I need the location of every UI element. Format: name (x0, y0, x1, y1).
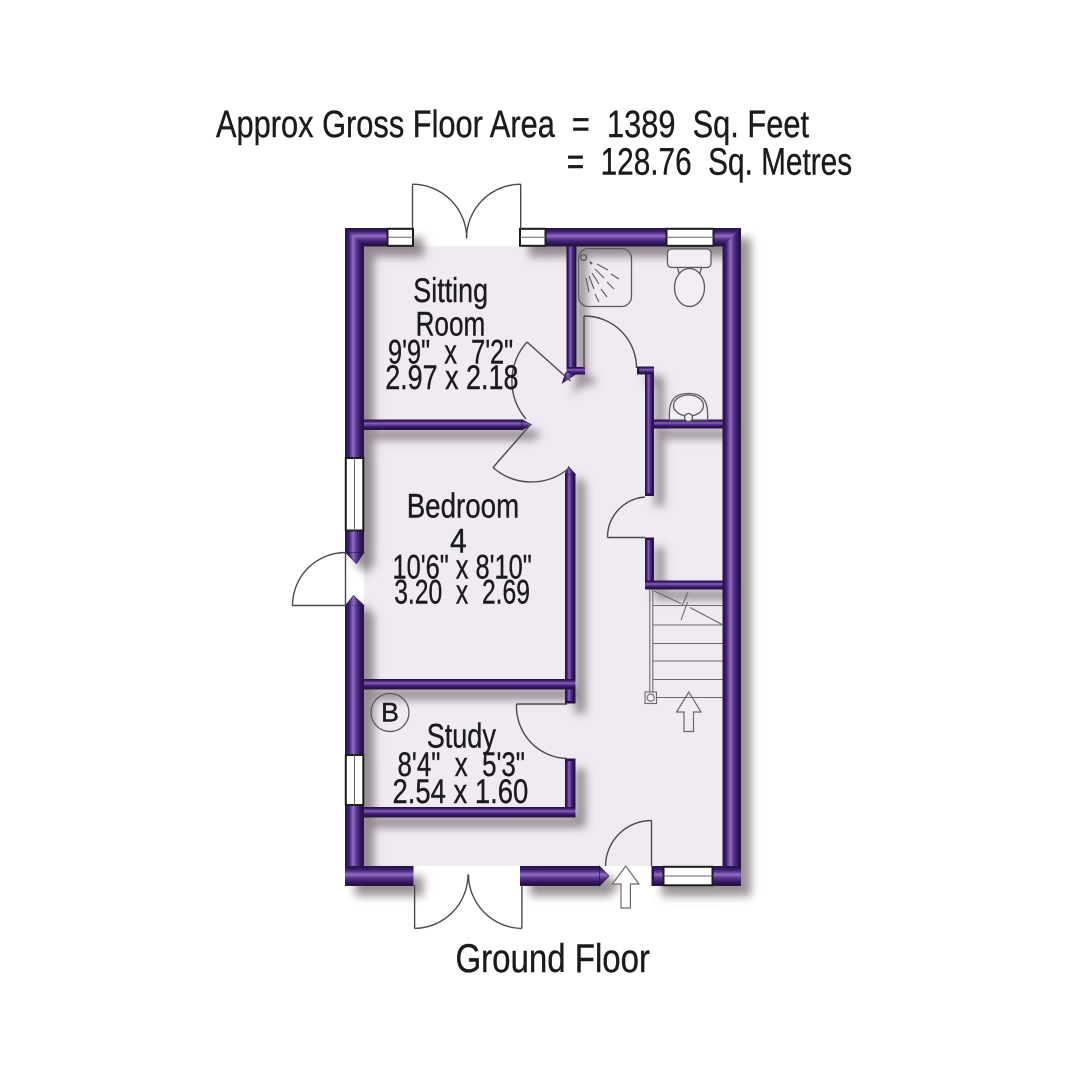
svg-text:B: B (381, 698, 399, 728)
svg-text:Sitting: Sitting (413, 272, 488, 310)
svg-text:= 128.76 Sq. Metres: = 128.76 Sq. Metres (567, 141, 852, 183)
svg-text:Ground Floor: Ground Floor (456, 937, 651, 981)
svg-text:Bedroom: Bedroom (407, 488, 520, 526)
svg-text:2.97 x 2.18: 2.97 x 2.18 (385, 359, 518, 397)
svg-text:Approx Gross Floor Area = 13: Approx Gross Floor Area = 1389 Sq. Feet (216, 104, 809, 146)
svg-text:3.20 x 2.69: 3.20 x 2.69 (394, 574, 530, 612)
svg-text:2.54 x 1.60: 2.54 x 1.60 (393, 773, 529, 811)
